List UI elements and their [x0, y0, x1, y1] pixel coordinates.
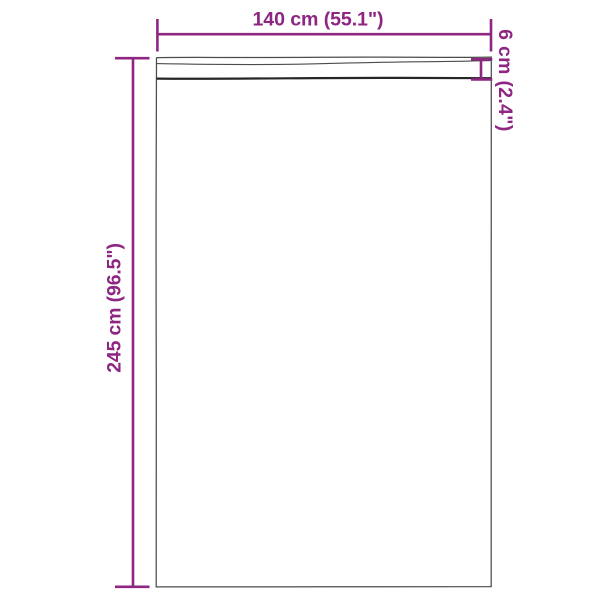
svg-text:140 cm (55.1"): 140 cm (55.1") — [253, 8, 384, 30]
svg-text:245 cm (96.5"): 245 cm (96.5") — [104, 243, 126, 373]
svg-text:6 cm (2.4"): 6 cm (2.4") — [494, 29, 516, 131]
